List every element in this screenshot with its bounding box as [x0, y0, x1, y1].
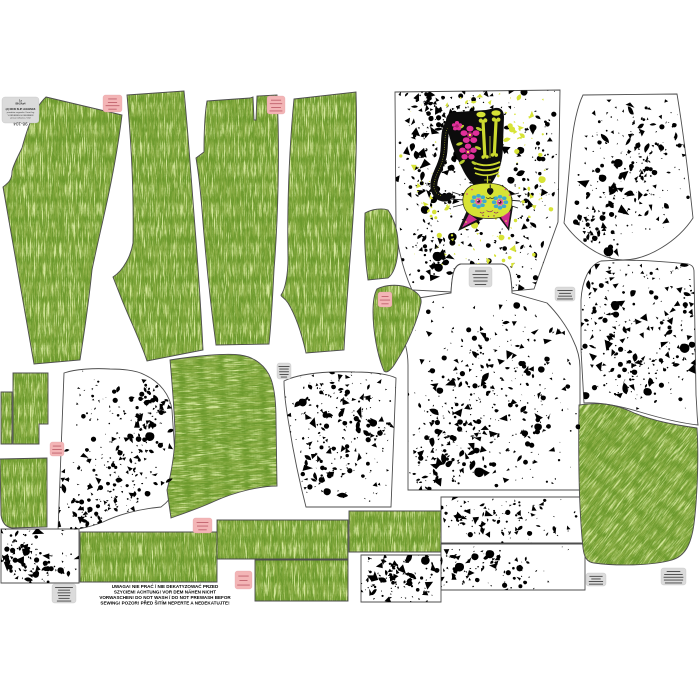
- svg-text:(A) NICKI SLIP LEGGINGS: (A) NICKI SLIP LEGGINGS: [6, 108, 36, 111]
- svg-text:86-2Ax4: 86-2Ax4: [16, 102, 27, 106]
- svg-text:98-104: 98-104: [13, 122, 28, 127]
- svg-text:UWAGA! NIE PRAĆ / NIE DEKATYZ: UWAGA! NIE PRAĆ / NIE DEKATYZOWAĆ PRZED: [112, 582, 219, 589]
- svg-text:prava nohavica / elol: prava nohavica / elol: [10, 117, 31, 120]
- svg-text:przednia nogawka / front leg: przednia nogawka / front leg: [7, 111, 35, 114]
- svg-text:VORWASCHEN! DO NOT WASH / DO N: VORWASCHEN! DO NOT WASH / DO NOT PREWASH…: [99, 595, 231, 600]
- svg-text:SEWING! POZOR! PŘED ŠITÍM NEPE: SEWING! POZOR! PŘED ŠITÍM NEPERTE A NEDE…: [100, 599, 230, 606]
- svg-text:VORDERES HOSENBEIN: VORDERES HOSENBEIN: [8, 115, 34, 117]
- svg-text:SZYCIEM! ACHTUNG! VOR DEM NÄHE: SZYCIEM! ACHTUNG! VOR DEM NÄHEN NICHT: [114, 589, 216, 595]
